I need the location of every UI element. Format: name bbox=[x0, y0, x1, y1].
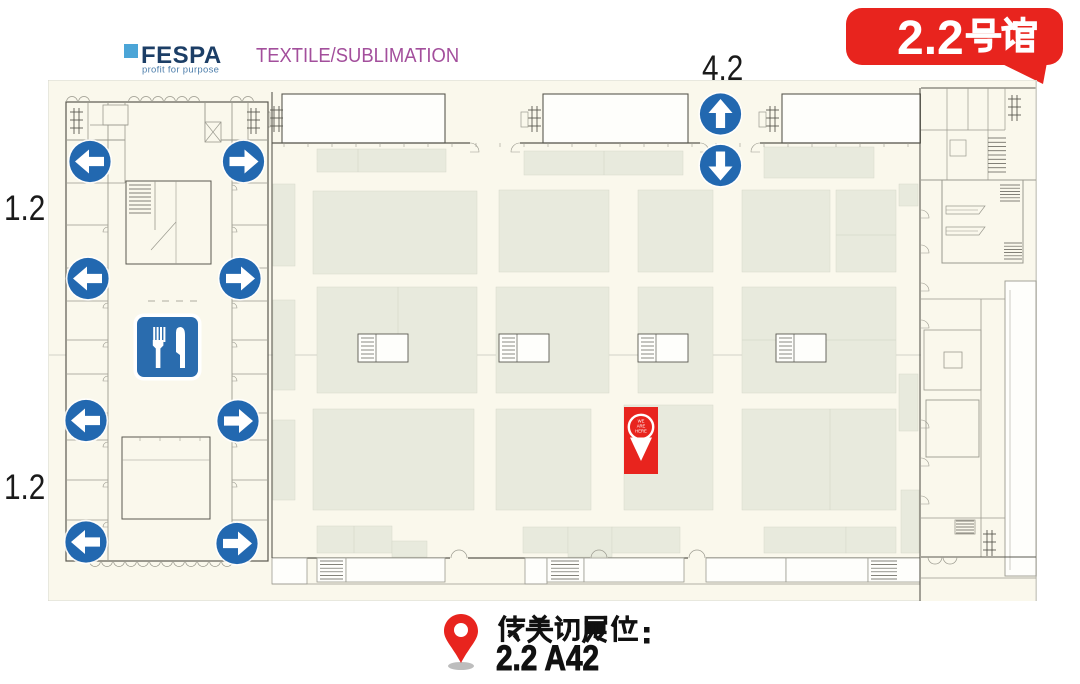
svg-text:HERE: HERE bbox=[635, 429, 647, 434]
svg-text:profit for purpose: profit for purpose bbox=[142, 65, 219, 76]
svg-text:2.2 A42: 2.2 A42 bbox=[496, 639, 599, 678]
svg-text:2.2: 2.2 bbox=[897, 12, 964, 65]
